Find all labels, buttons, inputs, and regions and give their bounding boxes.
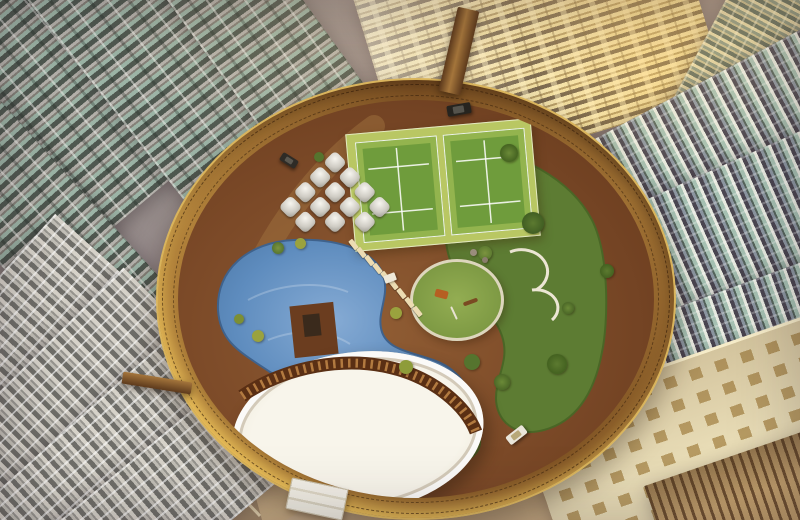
- tree: [522, 212, 544, 234]
- tree: [547, 354, 567, 374]
- shrub: [399, 360, 413, 374]
- amenity-deck: [178, 100, 654, 498]
- pergola-bridge: [242, 363, 476, 432]
- podium-oval: [156, 78, 676, 520]
- car-windshield: [452, 105, 464, 114]
- rock: [482, 257, 488, 263]
- shrub: [464, 354, 480, 370]
- tree: [494, 374, 510, 390]
- play-equipment-frame: [463, 298, 478, 307]
- play-equipment-slide: [434, 288, 449, 299]
- seating-arc-2: [532, 290, 558, 320]
- rock: [470, 249, 477, 256]
- shrub: [252, 330, 264, 342]
- kids-play-circle: [410, 259, 504, 341]
- tennis-courts: [345, 118, 541, 252]
- tree: [272, 242, 284, 254]
- tennis-court-2: [443, 128, 533, 236]
- tree: [500, 144, 518, 162]
- tree: [562, 302, 574, 314]
- shrub: [314, 152, 324, 162]
- car-windshield: [284, 156, 294, 165]
- aerial-render-stage: [0, 0, 800, 520]
- shrub: [390, 307, 402, 319]
- shrub: [234, 314, 244, 324]
- play-equipment-swing: [450, 306, 458, 320]
- shrub: [295, 238, 306, 249]
- tree: [600, 264, 614, 278]
- seating-arc-1: [510, 250, 548, 290]
